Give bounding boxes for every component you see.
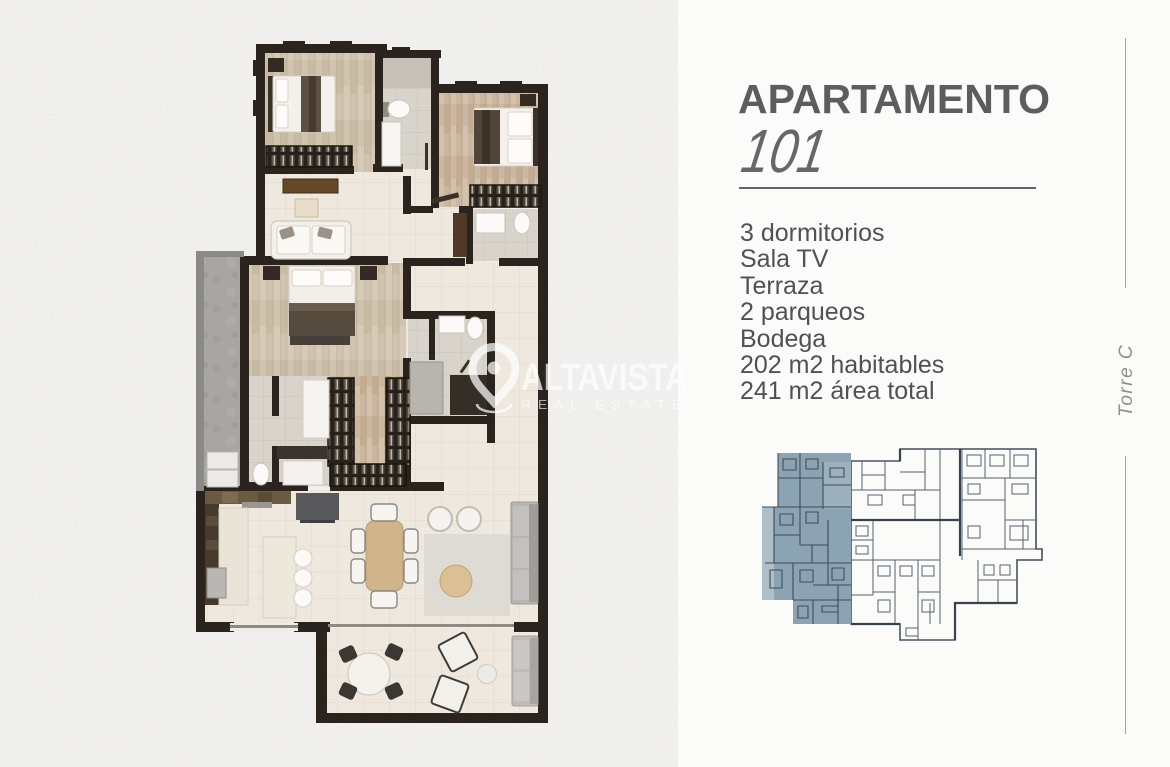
svg-text:ALTAVISTA: ALTAVISTA (521, 357, 688, 399)
svg-text:REAL ESTATE: REAL ESTATE (521, 398, 688, 412)
